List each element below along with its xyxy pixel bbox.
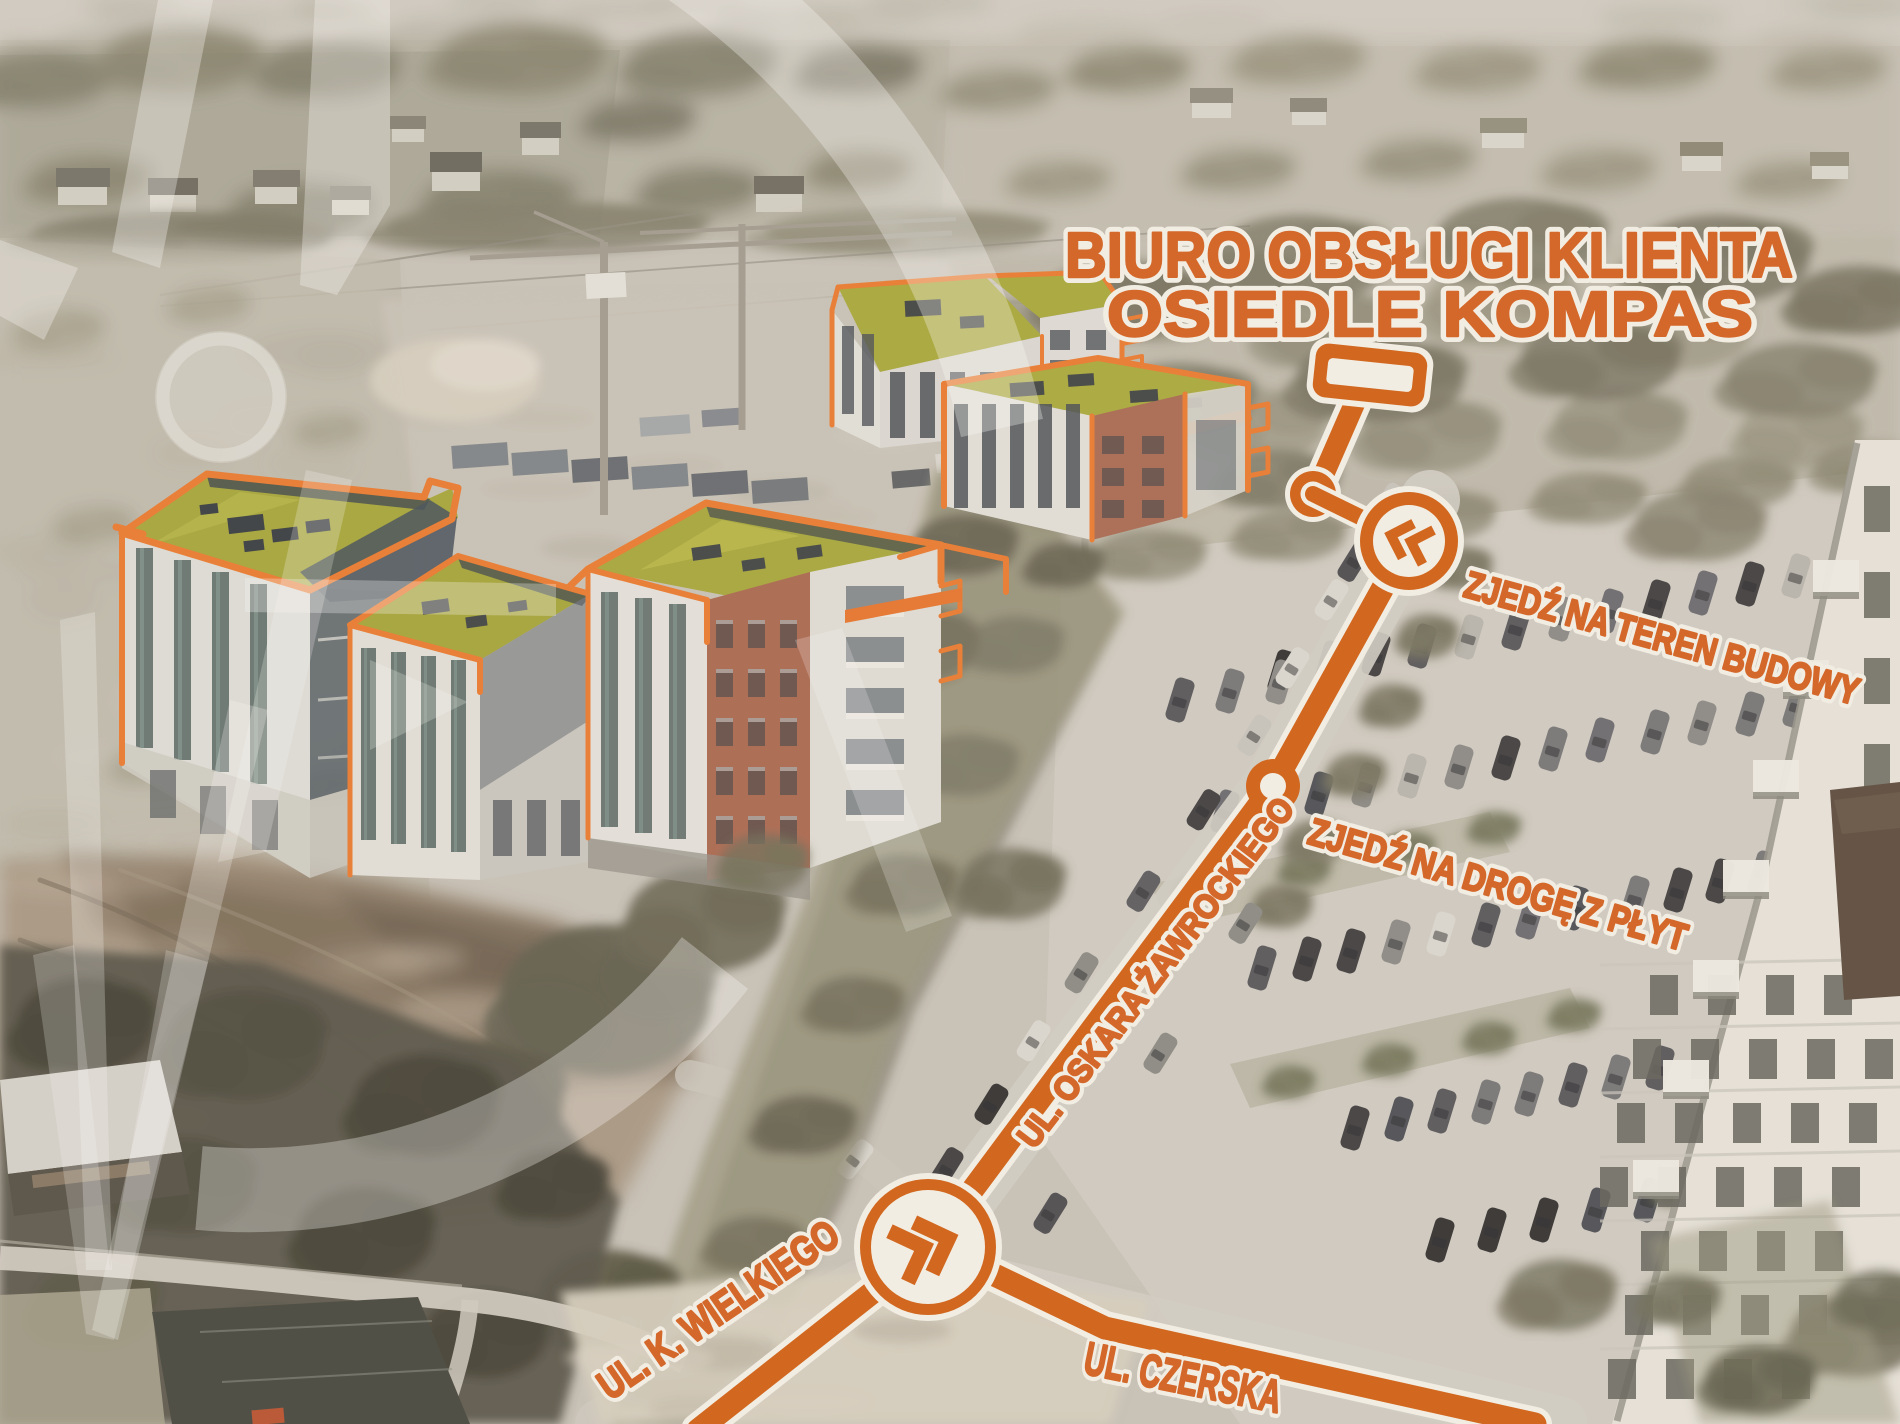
svg-text:OSIEDLE KOMPAS: OSIEDLE KOMPAS	[1107, 278, 1753, 350]
